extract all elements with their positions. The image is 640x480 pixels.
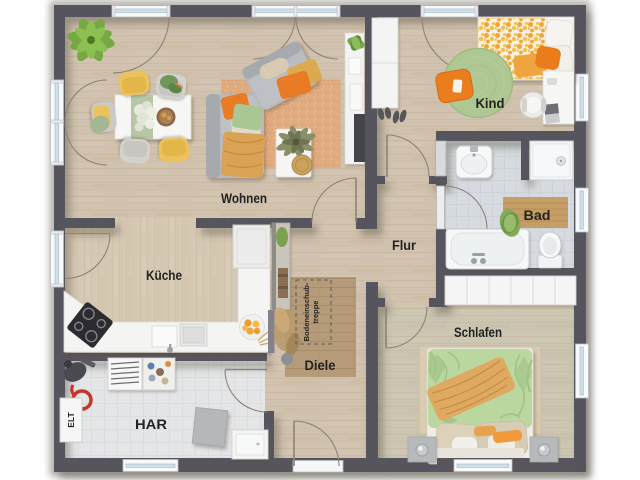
svg-text:treppe: treppe [311, 301, 320, 324]
svg-text:ELT: ELT [66, 411, 76, 427]
svg-text:Diele: Diele [305, 357, 336, 373]
svg-text:HAR: HAR [135, 416, 167, 432]
svg-text:Kind: Kind [476, 95, 505, 111]
svg-text:Wohnen: Wohnen [221, 190, 267, 206]
svg-text:Schlafen: Schlafen [454, 325, 502, 340]
svg-text:Bodeneinschub-: Bodeneinschub- [302, 282, 311, 341]
svg-text:Küche: Küche [146, 267, 182, 283]
svg-text:Flur: Flur [392, 238, 417, 253]
svg-text:Bad: Bad [524, 207, 551, 223]
